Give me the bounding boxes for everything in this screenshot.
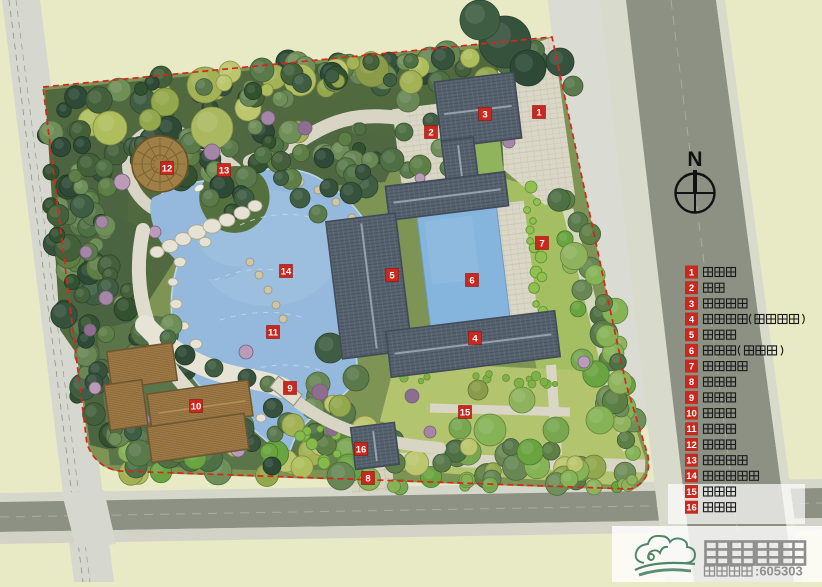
svg-text:3: 3 [689, 299, 694, 310]
svg-text:15: 15 [460, 407, 471, 418]
svg-text:7: 7 [539, 238, 544, 249]
svg-text:14: 14 [281, 266, 292, 277]
svg-text:3: 3 [482, 109, 487, 120]
svg-text:N: N [687, 148, 702, 171]
svg-text:10: 10 [686, 409, 697, 420]
svg-text:7: 7 [689, 362, 694, 373]
svg-text:9: 9 [287, 383, 292, 394]
svg-text:16: 16 [686, 503, 697, 514]
svg-text:11: 11 [686, 424, 697, 435]
svg-text:2: 2 [689, 283, 694, 294]
svg-text:11: 11 [268, 327, 279, 338]
svg-text:5: 5 [389, 270, 395, 281]
svg-text:6: 6 [469, 275, 474, 286]
svg-text:14: 14 [686, 471, 697, 482]
svg-text:8: 8 [689, 377, 694, 388]
svg-text::605303: :605303 [755, 564, 803, 579]
svg-text:9: 9 [689, 393, 694, 404]
svg-text:8: 8 [365, 473, 370, 484]
svg-text:4: 4 [472, 333, 478, 344]
svg-text:1: 1 [536, 107, 542, 118]
svg-text:16: 16 [356, 444, 367, 455]
svg-text:2: 2 [428, 127, 433, 138]
svg-text:15: 15 [686, 487, 697, 498]
svg-text:1: 1 [689, 267, 695, 278]
svg-text:12: 12 [686, 440, 697, 451]
svg-text:6: 6 [689, 346, 694, 357]
svg-text:13: 13 [219, 165, 230, 176]
svg-text:4: 4 [689, 314, 695, 325]
svg-text:13: 13 [686, 456, 697, 467]
svg-text:10: 10 [191, 401, 202, 412]
svg-text:12: 12 [162, 163, 173, 174]
svg-text:5: 5 [689, 330, 695, 341]
